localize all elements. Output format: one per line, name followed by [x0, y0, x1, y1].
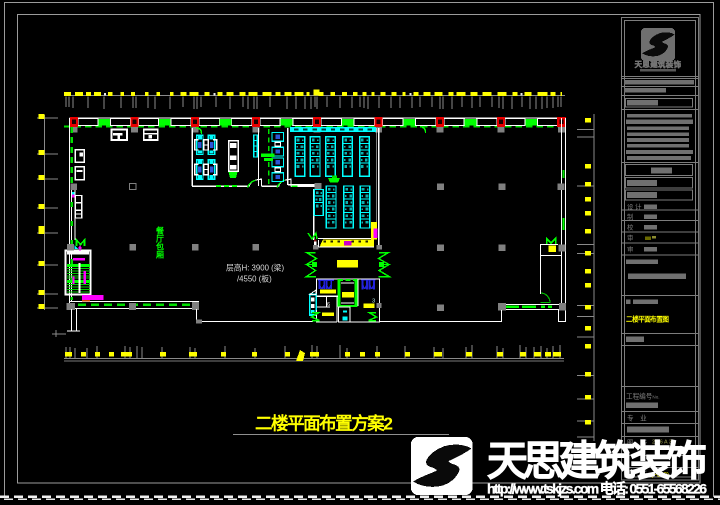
- svg-text:审: 审: [627, 233, 633, 242]
- svg-text:审: 审: [627, 244, 633, 253]
- svg-text:制: 制: [627, 212, 633, 221]
- svg-text:/4550 (板): /4550 (板): [237, 274, 272, 284]
- svg-text:天思建筑装饰: 天思建筑装饰: [635, 60, 682, 69]
- svg-text:设 计: 设 计: [627, 202, 642, 211]
- svg-text:专 业: 专 业: [627, 414, 647, 423]
- svg-text:http://www.tskjzs.com 电话: 0551: http://www.tskjzs.com 电话: 0551-65568226: [487, 481, 707, 497]
- svg-text:天思建筑装饰: 天思建筑装饰: [487, 438, 707, 484]
- svg-text:二楼平面布置方案2: 二楼平面布置方案2: [255, 413, 393, 433]
- svg-text:3: 3: [372, 299, 375, 305]
- svg-text:6: 6: [327, 302, 330, 308]
- svg-text:二楼平面布置图: 二楼平面布置图: [626, 315, 669, 324]
- svg-text:层高H: 3900 (梁): 层高H: 3900 (梁): [226, 263, 284, 273]
- svg-text:厢: 厢: [156, 251, 164, 260]
- svg-text:校: 校: [627, 222, 634, 231]
